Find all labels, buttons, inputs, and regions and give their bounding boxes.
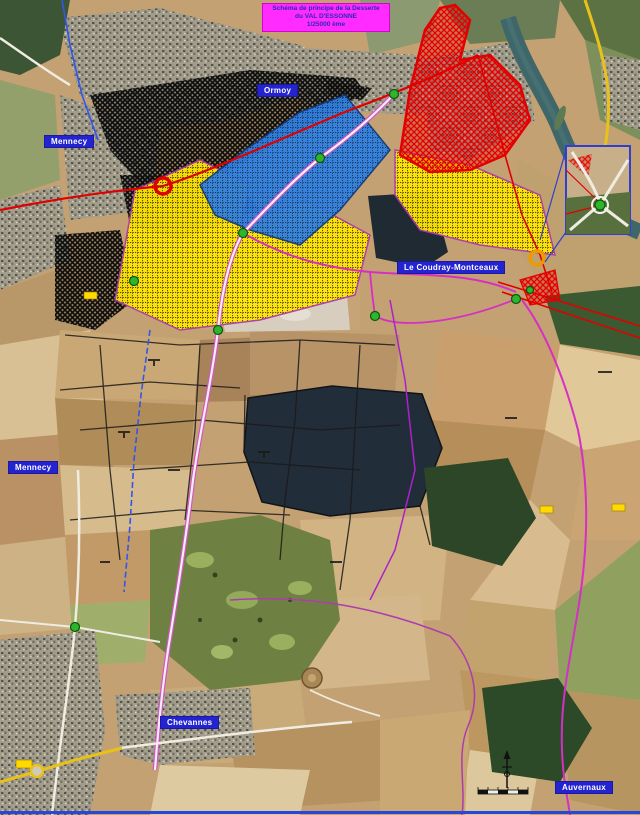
map-title-line1: Schéma de principe de la Desserte [263, 5, 389, 13]
place-label-ormoy: Ormoy [257, 84, 298, 97]
place-label-mennecy-north: Mennecy [44, 135, 94, 148]
place-label-auvernaux: Auvernaux [555, 781, 613, 794]
map-title-line3: 1/25000 ème [263, 21, 389, 29]
inset-green-node [595, 200, 605, 210]
mound-landmark [302, 668, 322, 688]
map-title-line2: du VAL D'ESSONNE [263, 13, 389, 21]
aerial-planning-map: Schéma de principe de la Desserte du VAL… [0, 0, 640, 815]
place-label-le-coudray: Le Coudray-Montceaux [397, 261, 505, 274]
map-graphic [0, 0, 640, 815]
place-label-chevannes: Chevannes [160, 716, 219, 729]
yellow-roundabout [31, 765, 43, 777]
place-label-mennecy-south: Mennecy [8, 461, 58, 474]
map-title-box: Schéma de principe de la Desserte du VAL… [262, 3, 390, 32]
